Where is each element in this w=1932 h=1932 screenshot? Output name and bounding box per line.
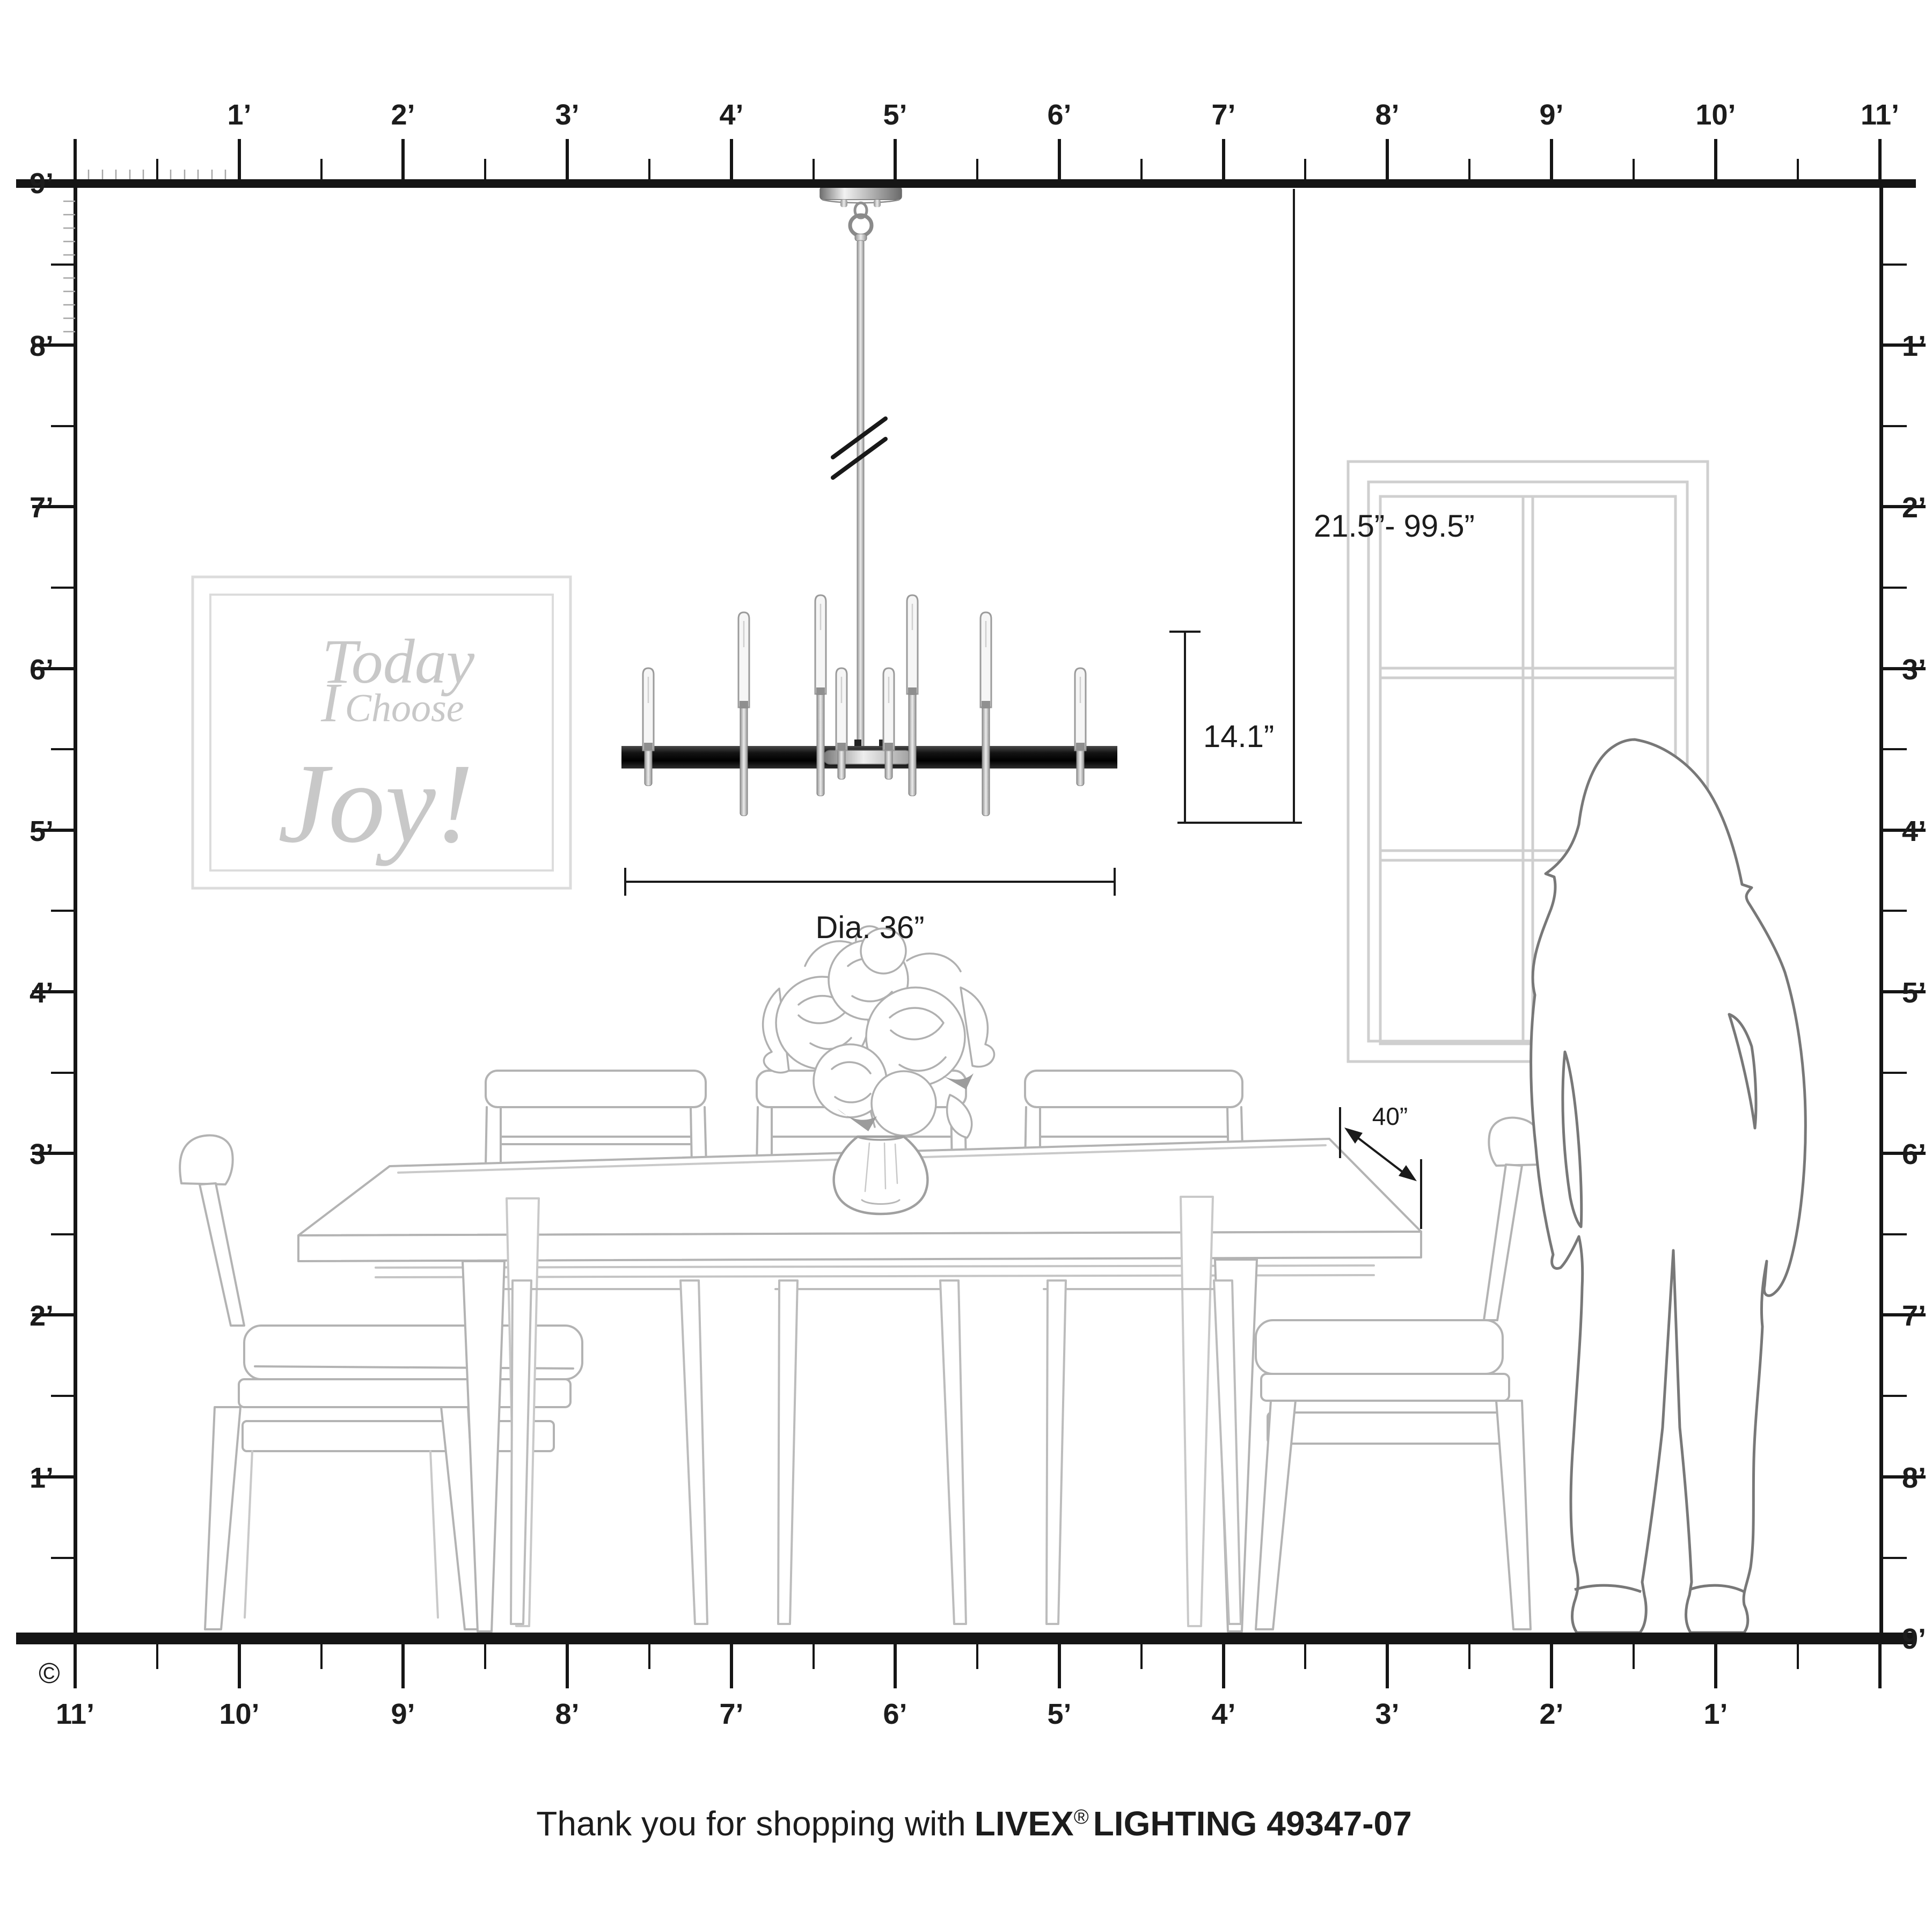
chair-seat-cushion — [1256, 1320, 1503, 1374]
footer-model-number: LIGHTING 49347-07 — [1093, 1804, 1412, 1843]
ruler-label: 2’ — [1539, 1698, 1563, 1730]
chair-top-rail — [486, 1071, 706, 1107]
canopy-nipple — [874, 200, 881, 207]
chair-front-leg — [1256, 1401, 1296, 1629]
candle-socket — [982, 701, 990, 708]
chair-far-leg — [430, 1451, 438, 1618]
chair-leg — [778, 1280, 797, 1624]
leaf — [961, 987, 994, 1067]
table-slab — [298, 1232, 1421, 1261]
candle-socket — [837, 743, 846, 750]
candle — [836, 668, 847, 779]
chair-back-post — [1484, 1165, 1522, 1320]
woman-silhouette — [1531, 740, 1806, 1633]
ruler-label: 5’ — [30, 815, 54, 847]
ruler-label: 5’ — [1047, 1698, 1071, 1730]
ruler-label: 1’ — [227, 99, 251, 131]
wall-left-line — [74, 179, 77, 1633]
ruler-bottom-labels: 11’ 10’ 9’ 8’ 7’ 6’ 5’ 4’ 3’ 2’ 1’ — [56, 1698, 1728, 1730]
chair-post — [486, 1107, 487, 1166]
candle-socket — [644, 743, 653, 750]
chair-leg — [680, 1280, 707, 1624]
candle — [883, 668, 894, 779]
footer-brand: LIVEX — [975, 1804, 1074, 1843]
candle — [907, 595, 918, 796]
ruler-label: 7’ — [1211, 99, 1235, 131]
ruler-label: 5’ — [1902, 977, 1926, 1009]
ruler-label: 7’ — [30, 492, 54, 524]
canopy-nipple — [840, 200, 847, 207]
ruler-label: 8’ — [30, 330, 54, 362]
ruler-label: 3’ — [555, 99, 579, 131]
chandelier-stem — [857, 240, 864, 748]
art-text-line3: Joy! — [278, 740, 474, 866]
leaf — [907, 954, 961, 971]
ruler-label: 10’ — [219, 1698, 259, 1730]
candle — [815, 595, 826, 796]
chair-leg — [1046, 1280, 1066, 1624]
ruler-label: 9’ — [391, 1698, 415, 1730]
candle-socket — [816, 687, 825, 695]
candle — [980, 612, 991, 816]
ruler-label: 8’ — [1375, 99, 1399, 131]
ruler-label: 5’ — [883, 99, 907, 131]
chair-seat-frame — [1261, 1374, 1509, 1401]
dim-arrow-line — [1358, 1138, 1403, 1173]
chandelier-canopy — [820, 187, 902, 200]
candle — [1075, 668, 1086, 786]
fixture-height-label: 14.1” — [1203, 719, 1274, 754]
right-half-ticks — [1883, 265, 1907, 1558]
footer-prefix: Thank you for shopping with — [536, 1804, 965, 1843]
ruler-label: 1’ — [1902, 330, 1926, 362]
candle — [643, 668, 654, 786]
ruler-label: 6’ — [883, 1698, 907, 1730]
ruler-label: 9’ — [1902, 1623, 1926, 1655]
ruler-label: 6’ — [1047, 99, 1071, 131]
ruler-label: 3’ — [30, 1138, 54, 1170]
ruler-top — [75, 139, 1880, 179]
chair-far-leg — [245, 1451, 252, 1618]
diagram-canvas: Today IChoose Joy! — [0, 0, 1932, 1932]
back-chair-legs — [504, 1280, 1241, 1624]
chair-rear-leg — [1496, 1401, 1531, 1629]
ruler-label: 11’ — [56, 1698, 94, 1730]
ceiling-line — [16, 179, 1916, 188]
candle-socket — [740, 701, 748, 708]
ruler-right-labels: 1’ 2’ 3’ 4’ 5’ 6’ 7’ 8’ 9’ — [1902, 330, 1926, 1655]
ruler-top-labels: 1’ 2’ 3’ 4’ 5’ 6’ 7’ 8’ 9’ 10’ 11’ — [227, 99, 1899, 131]
ruler-label: 9’ — [30, 167, 54, 200]
chair-leg — [940, 1280, 966, 1624]
ruler-label: 3’ — [1902, 654, 1926, 686]
footer-registered-icon: ® — [1074, 1806, 1089, 1828]
chair-headrest — [180, 1136, 233, 1184]
candle-socket — [1076, 743, 1085, 750]
peony — [872, 1071, 936, 1136]
art-text-i: I — [320, 672, 342, 734]
dining-set — [180, 926, 1542, 1631]
ruler-label: 1’ — [1703, 1698, 1728, 1730]
wall-right-line — [1879, 179, 1883, 1633]
left-half-ticks — [51, 265, 75, 1558]
ruler-label: 2’ — [1902, 492, 1926, 524]
chair-stretcher — [1268, 1413, 1504, 1444]
ruler-label: 3’ — [1375, 1698, 1399, 1730]
ruler-label: 10’ — [1695, 99, 1736, 131]
table-clearance-label: 40” — [1372, 1102, 1408, 1130]
hang-range-label: 21.5”- 99.5” — [1314, 509, 1475, 544]
ruler-label: 8’ — [1902, 1462, 1926, 1494]
floor-line — [16, 1633, 1916, 1644]
ruler-left — [32, 201, 75, 1558]
ruler-label: 1’ — [30, 1462, 54, 1494]
candle-socket — [884, 743, 893, 750]
ruler-label: 6’ — [30, 654, 54, 686]
band-mount-tab — [854, 740, 861, 746]
chandelier — [621, 187, 1117, 816]
wall-art: Today IChoose Joy! — [193, 577, 570, 888]
chain-collar — [855, 234, 867, 241]
ruler-label: 9’ — [1539, 99, 1563, 131]
ruler-label: 7’ — [719, 1698, 743, 1730]
chair-back-1 — [486, 1071, 706, 1166]
ruler-label: 4’ — [719, 99, 743, 131]
arrowhead — [1399, 1165, 1417, 1181]
ruler-label: 4’ — [1902, 815, 1926, 847]
room-scale-diagram: Today IChoose Joy! — [0, 0, 1932, 1932]
ruler-label: 4’ — [1211, 1698, 1235, 1730]
copyright-mark: © — [39, 1657, 60, 1689]
ruler-label: 8’ — [555, 1698, 579, 1730]
ruler-label: 2’ — [30, 1300, 54, 1332]
chair-rear-leg — [205, 1407, 240, 1629]
ruler-left-labels: 9’ 8’ 7’ 6’ 5’ 4’ 3’ 2’ 1’ — [30, 167, 54, 1494]
chair-top-rail — [1025, 1071, 1242, 1107]
vase-body — [834, 1137, 928, 1214]
arrowhead — [1344, 1128, 1363, 1144]
diameter-label: Dia. 36” — [815, 910, 924, 945]
dimension-diameter — [625, 868, 1115, 896]
art-text-choose: Choose — [345, 686, 464, 730]
ruler-label: 7’ — [1902, 1300, 1926, 1332]
table-back-leg — [1181, 1197, 1213, 1626]
chair-stretcher — [243, 1421, 554, 1451]
left-inch-ticks — [63, 201, 75, 332]
band-center-cylinder — [823, 750, 912, 764]
ruler-label: 4’ — [30, 977, 54, 1009]
ruler-bottom — [75, 1644, 1880, 1688]
ruler-label: 6’ — [1902, 1138, 1926, 1170]
ruler-right — [1883, 265, 1926, 1558]
candle — [738, 612, 749, 816]
chair-back-post — [200, 1183, 244, 1326]
ruler-label: 11’ — [1861, 99, 1899, 131]
footer-text: Thank you for shopping withLIVEX®LIGHTIN… — [536, 1804, 1411, 1843]
candle-socket — [908, 687, 917, 695]
ruler-label: 2’ — [391, 99, 415, 131]
